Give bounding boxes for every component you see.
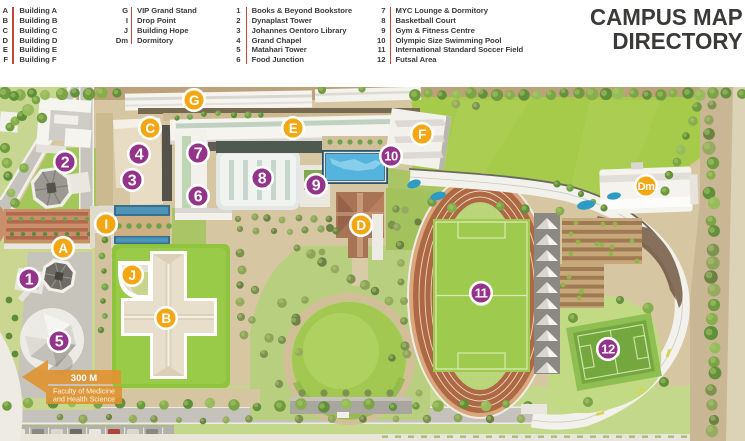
svg-text:F: F (418, 127, 426, 142)
svg-text:J: J (128, 268, 135, 283)
svg-text:10: 10 (384, 149, 398, 164)
svg-text:and Health Science: and Health Science (53, 395, 115, 404)
svg-text:4: 4 (135, 147, 144, 164)
svg-text:E: E (289, 121, 298, 136)
svg-text:I: I (104, 217, 107, 232)
svg-text:B: B (161, 311, 171, 326)
svg-text:G: G (189, 93, 199, 108)
svg-text:C: C (145, 121, 155, 136)
svg-text:1: 1 (25, 272, 34, 289)
svg-text:3: 3 (128, 173, 137, 190)
svg-text:12: 12 (601, 342, 615, 357)
svg-text:7: 7 (194, 146, 203, 163)
svg-text:5: 5 (55, 334, 64, 351)
svg-text:11: 11 (475, 286, 488, 301)
svg-text:9: 9 (312, 178, 321, 195)
svg-text:2: 2 (61, 155, 70, 172)
svg-text:D: D (356, 218, 366, 233)
svg-text:300 M: 300 M (71, 373, 97, 384)
svg-text:A: A (58, 241, 68, 256)
svg-text:8: 8 (258, 171, 267, 188)
svg-text:Dm: Dm (638, 181, 655, 193)
svg-text:6: 6 (194, 189, 203, 206)
